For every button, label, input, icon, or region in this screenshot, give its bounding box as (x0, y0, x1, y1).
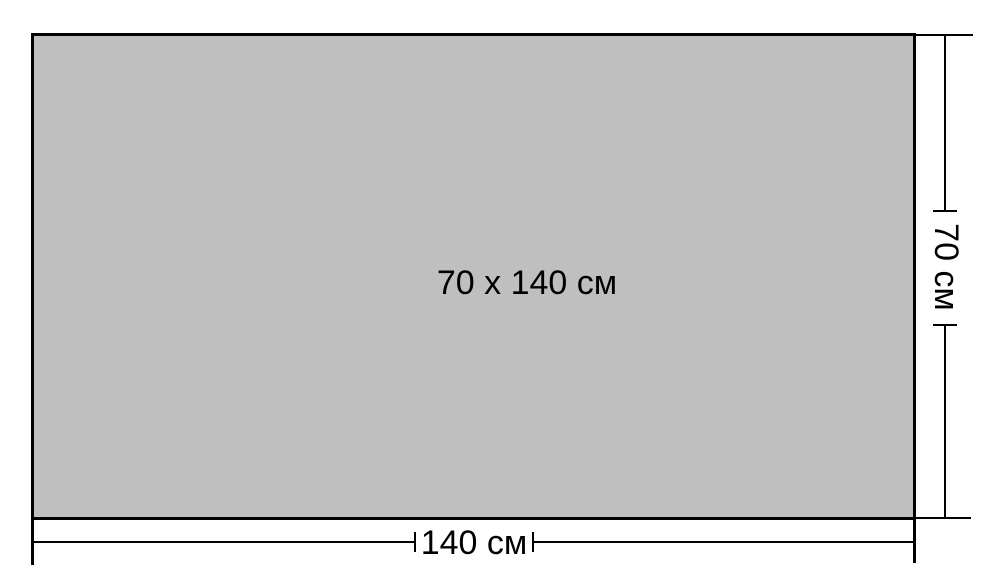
extension-line-bottom-right (916, 517, 971, 519)
extension-line-bottom-right-vertical (913, 520, 916, 563)
rectangle: 70 x 140 см (31, 33, 916, 520)
size-diagram: 70 x 140 см 70 см 140 см (0, 0, 1000, 582)
height-dimension-line-lower (944, 325, 946, 517)
height-dimension-tick-lower (933, 324, 957, 326)
center-size-label: 70 x 140 см (327, 262, 727, 304)
height-dimension-label: 70 см (925, 167, 967, 367)
width-dimension-line-right (533, 541, 913, 543)
width-dimension-label: 140 см (274, 522, 674, 564)
